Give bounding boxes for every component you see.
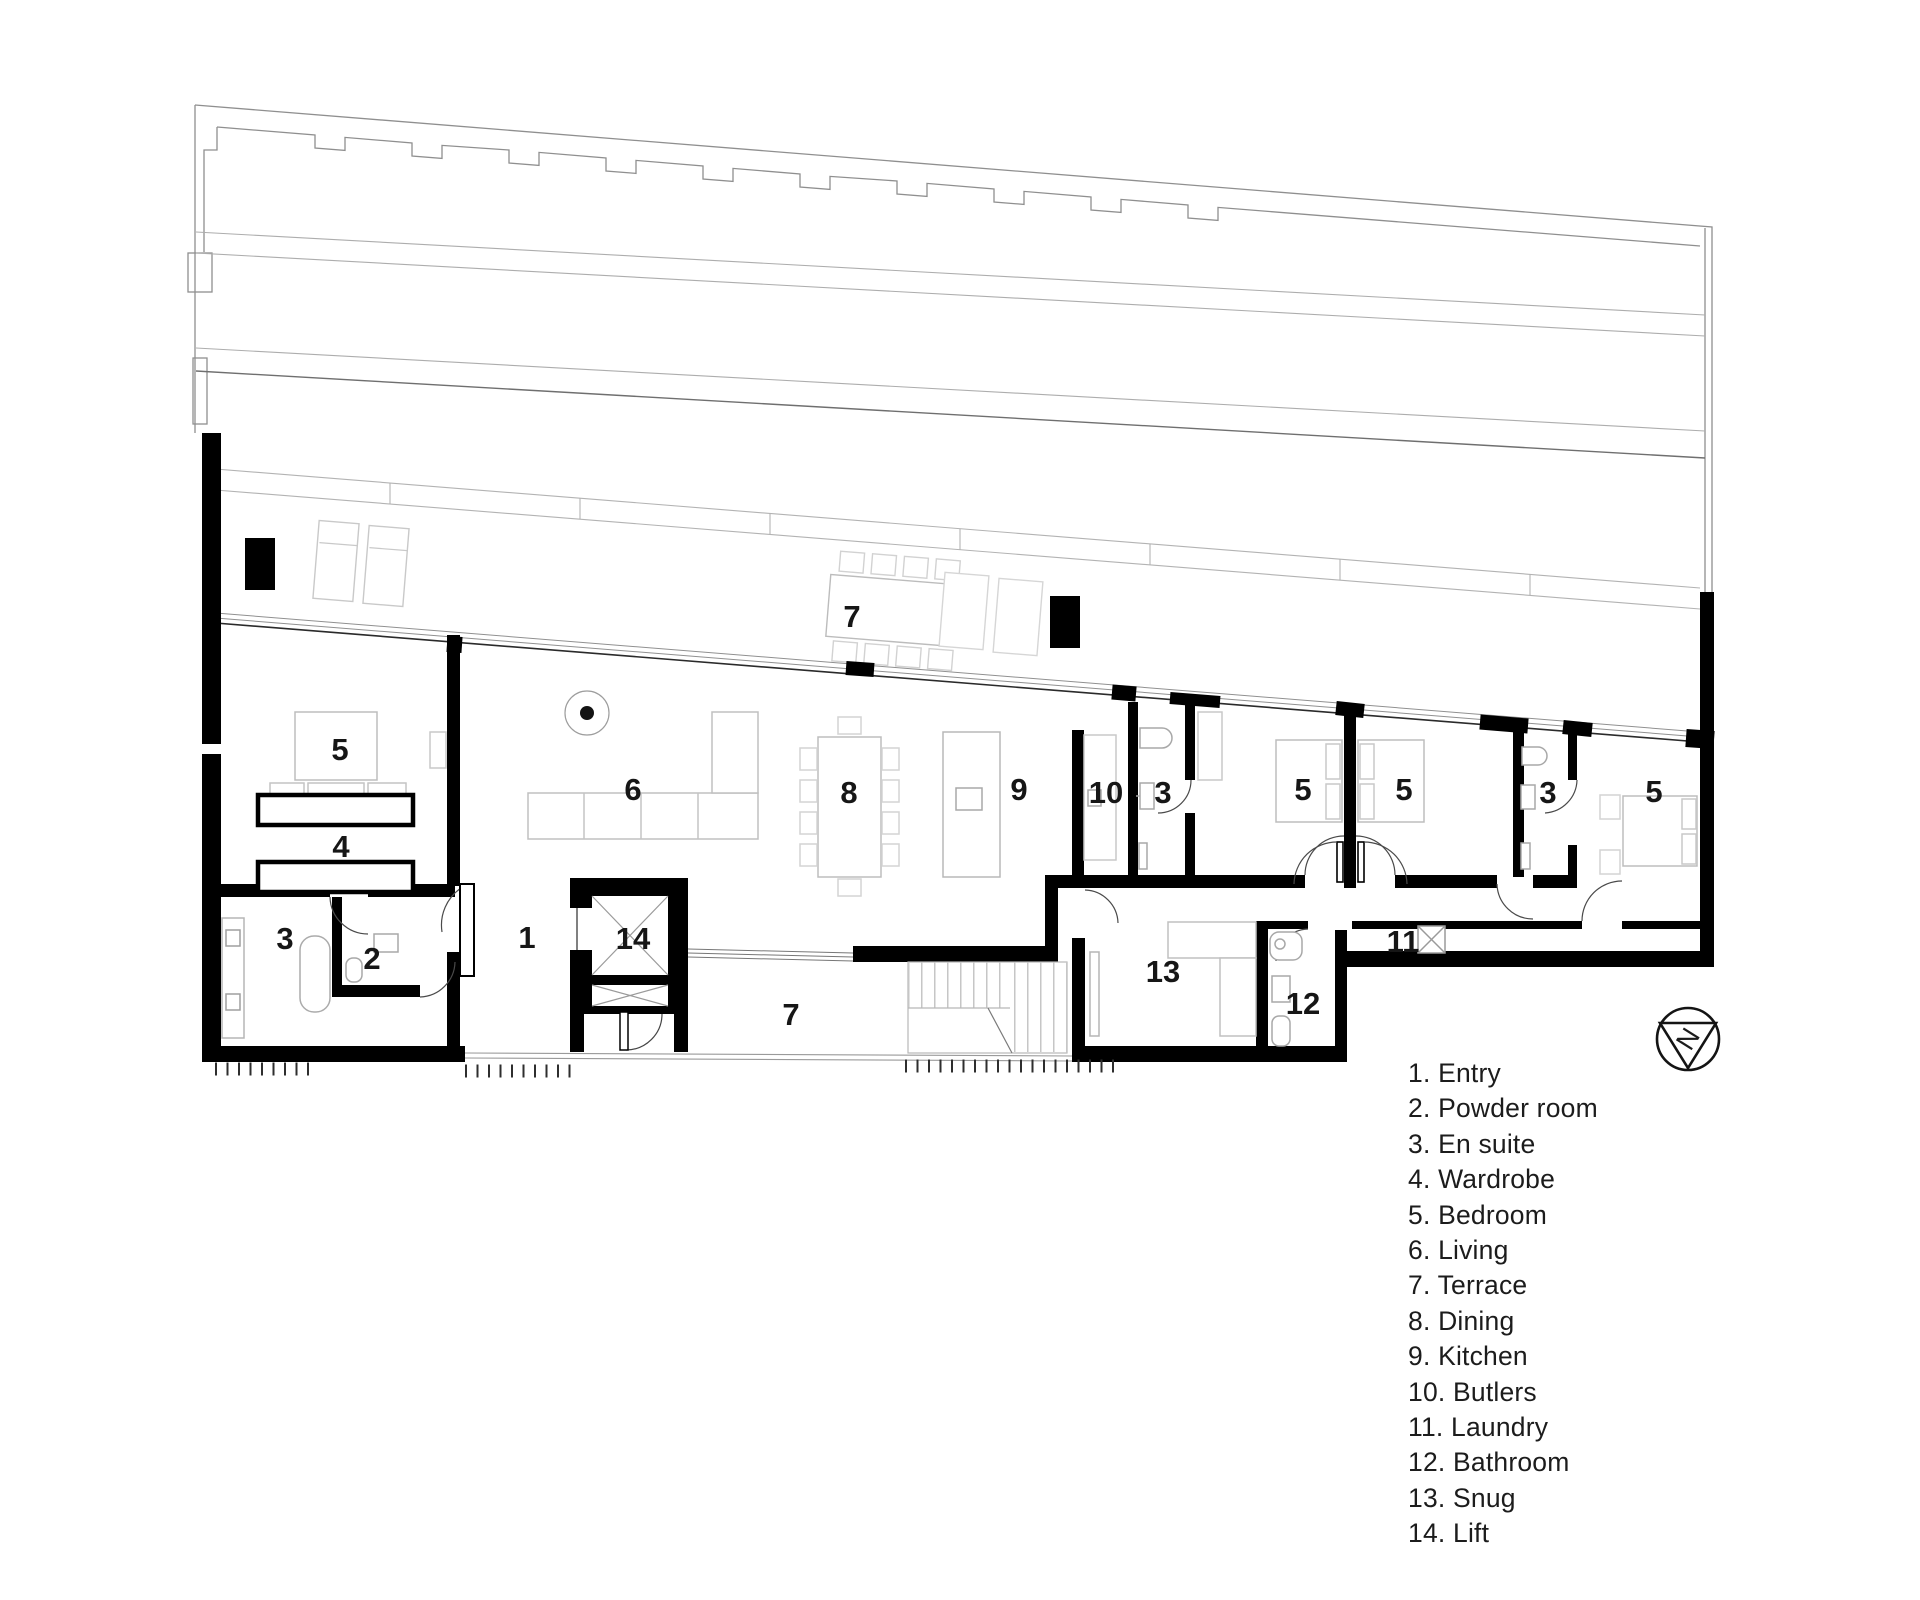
room-label-powder-room: 2 <box>363 941 380 976</box>
legend-item-terrace: 7. Terrace <box>1408 1268 1598 1303</box>
room-label-butlers: 10 <box>1089 775 1123 810</box>
room-label-kitchen: 9 <box>1010 772 1027 807</box>
site-boundary <box>188 105 1712 594</box>
legend-item-powder: 2. Powder room <box>1408 1091 1598 1126</box>
legend-item-bathroom: 12. Bathroom <box>1408 1445 1598 1480</box>
column <box>245 538 275 590</box>
legend-item-butlers: 10. Butlers <box>1408 1375 1598 1410</box>
column <box>1050 596 1080 648</box>
room-label-ensuite-left: 3 <box>276 921 293 956</box>
room-label-ensuite-right: 3 <box>1539 775 1556 810</box>
room-label-terrace-upper: 7 <box>843 599 860 634</box>
legend-item-wardrobe: 4. Wardrobe <box>1408 1162 1598 1197</box>
legend-item-ensuite: 3. En suite <box>1408 1127 1598 1162</box>
room-label-laundry: 11 <box>1387 924 1420 959</box>
legend-item-dining: 8. Dining <box>1408 1304 1598 1339</box>
floor-plan-drawing: 7 5 4 3 2 1 14 6 8 9 10 3 5 5 3 5 13 12 … <box>0 0 1920 1600</box>
north-arrow: N <box>1657 1008 1719 1070</box>
legend-item-bedroom: 5. Bedroom <box>1408 1198 1598 1233</box>
furniture <box>222 691 1697 1046</box>
room-label-living: 6 <box>624 772 641 807</box>
floor-plan-page: 7 5 4 3 2 1 14 6 8 9 10 3 5 5 3 5 13 12 … <box>0 0 1920 1600</box>
room-label-bedroom-mid-2: 5 <box>1395 772 1412 807</box>
roof-lines <box>196 232 1705 609</box>
room-label-bedroom-mid-1: 5 <box>1294 772 1311 807</box>
legend: 1. Entry 2. Powder room 3. En suite 4. W… <box>1408 1056 1598 1552</box>
room-label-dining: 8 <box>840 775 857 810</box>
legend-item-laundry: 11. Laundry <box>1408 1410 1598 1445</box>
deck-hatch <box>215 1066 1118 1071</box>
room-label-wardrobe: 4 <box>332 829 350 864</box>
legend-item-kitchen: 9. Kitchen <box>1408 1339 1598 1374</box>
legend-item-lift: 14. Lift <box>1408 1516 1598 1551</box>
legend-item-snug: 13. Snug <box>1408 1481 1598 1516</box>
room-label-bathroom: 12 <box>1286 986 1320 1021</box>
room-label-bedroom-right: 5 <box>1645 774 1662 809</box>
room-label-bedroom-left: 5 <box>331 732 348 767</box>
window-gap <box>200 744 223 754</box>
legend-item-living: 6. Living <box>1408 1233 1598 1268</box>
room-label-terrace-lower: 7 <box>782 997 799 1032</box>
room-label-lift: 14 <box>616 921 651 956</box>
stair <box>908 962 1067 1053</box>
room-label-snug: 13 <box>1146 954 1180 989</box>
legend-item-entry: 1. Entry <box>1408 1056 1598 1091</box>
room-label-entry: 1 <box>518 920 535 955</box>
room-label-ensuite-mid: 3 <box>1154 775 1171 810</box>
